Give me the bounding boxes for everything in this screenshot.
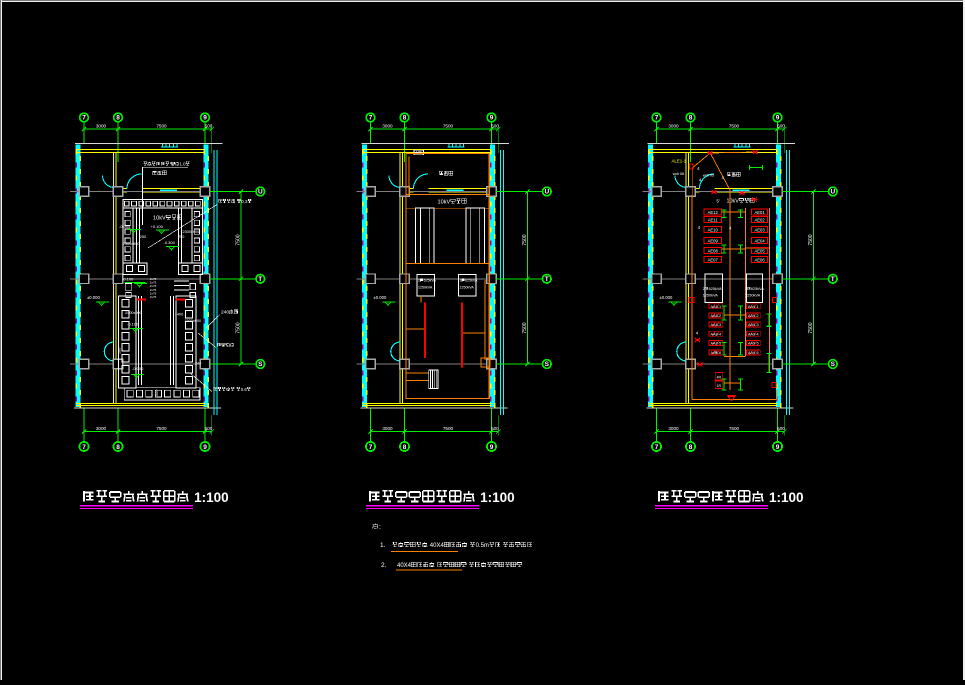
svg-text:7500: 7500	[522, 322, 528, 333]
svg-text:AE09: AE09	[708, 239, 719, 244]
svg-text:3000: 3000	[668, 124, 679, 129]
svg-text:AE04: AE04	[754, 239, 765, 244]
svg-text:3000: 3000	[382, 426, 393, 431]
svg-text:3000: 3000	[96, 426, 107, 431]
svg-text:500: 500	[777, 426, 785, 431]
svg-text:9: 9	[203, 115, 207, 122]
svg-text:10kV: 10kV	[438, 199, 451, 205]
svg-text:AE05: AE05	[754, 249, 765, 254]
svg-text:625kVA: 625kVA	[424, 279, 437, 283]
svg-text:7500: 7500	[236, 234, 242, 245]
svg-text:240: 240	[221, 310, 229, 316]
svg-text:AA8-2: AA8-2	[711, 314, 722, 318]
svg-text:7: 7	[82, 115, 86, 122]
svg-text:AA8-5: AA8-5	[711, 342, 722, 346]
svg-text::: :	[379, 524, 381, 531]
svg-text:1250kVA: 1250kVA	[745, 294, 761, 298]
svg-text:AE08: AE08	[708, 249, 719, 254]
svg-text:1:100: 1:100	[194, 490, 229, 505]
svg-text:500: 500	[777, 124, 785, 129]
svg-text:AA9-4: AA9-4	[748, 333, 759, 337]
svg-text:2: 2	[418, 279, 420, 283]
svg-text:2300x900: 2300x900	[183, 230, 200, 234]
svg-text:2.: 2.	[381, 562, 387, 569]
svg-text:T: T	[545, 276, 549, 283]
svg-text:9: 9	[203, 444, 207, 451]
svg-text:9: 9	[490, 115, 494, 122]
svg-text:0.6: 0.6	[241, 387, 248, 392]
svg-text:0.5m: 0.5m	[476, 543, 489, 549]
svg-text:8: 8	[403, 444, 407, 451]
svg-text:AA8-6: AA8-6	[711, 351, 722, 355]
svg-text:2500x900: 2500x900	[123, 242, 140, 246]
svg-text:AE11: AE11	[708, 217, 719, 222]
svg-text:500: 500	[205, 124, 213, 129]
svg-text:625kVA: 625kVA	[465, 279, 478, 283]
svg-text:7: 7	[655, 444, 659, 451]
svg-text:AA9-5: AA9-5	[748, 342, 759, 346]
svg-text:+0.100: +0.100	[151, 224, 164, 229]
svg-text:3000: 3000	[382, 124, 393, 129]
svg-text:7500: 7500	[729, 426, 740, 431]
svg-text:7500: 7500	[808, 322, 814, 333]
svg-text:-0.100: -0.100	[127, 322, 139, 327]
svg-text:1.: 1.	[380, 542, 386, 549]
svg-text:AE02: AE02	[754, 217, 765, 222]
svg-text:4R: 4R	[717, 375, 722, 379]
svg-text:1:100: 1:100	[480, 490, 515, 505]
svg-text:U: U	[830, 189, 835, 196]
svg-text:AA9-6: AA9-6	[748, 351, 759, 355]
svg-text:200: 200	[118, 348, 122, 354]
svg-text:500: 500	[491, 124, 499, 129]
svg-text:±0.000: ±0.000	[660, 295, 673, 300]
svg-text:7500: 7500	[156, 124, 167, 129]
svg-text:AA8-1: AA8-1	[711, 305, 722, 309]
svg-text:1.0: 1.0	[180, 162, 187, 167]
svg-text:1R: 1R	[717, 384, 722, 388]
svg-text:1250kVA: 1250kVA	[703, 294, 719, 298]
svg-text:7500: 7500	[808, 234, 814, 245]
svg-text:8: 8	[403, 115, 407, 122]
svg-text:U: U	[258, 189, 263, 196]
svg-text:9: 9	[490, 444, 494, 451]
svg-text:-0.100: -0.100	[122, 276, 134, 281]
svg-text:5': 5'	[717, 199, 720, 204]
svg-text:S: S	[831, 361, 836, 368]
svg-text:AE01: AE01	[754, 210, 765, 215]
svg-text:240: 240	[195, 362, 201, 366]
svg-text:7500: 7500	[156, 426, 167, 431]
svg-text:-0.050: -0.050	[132, 366, 144, 371]
svg-text:-0.300: -0.300	[164, 240, 176, 245]
svg-text:250: 250	[178, 235, 184, 239]
svg-text:AE12: AE12	[708, 210, 719, 215]
svg-text:1500x900: 1500x900	[184, 319, 201, 323]
svg-text:7: 7	[82, 444, 86, 451]
svg-text:8: 8	[689, 115, 693, 122]
svg-text:1:100: 1:100	[769, 490, 804, 505]
svg-text:7500: 7500	[443, 426, 454, 431]
svg-text:AA9-1: AA9-1	[748, 305, 759, 309]
svg-text:AE10: AE10	[708, 227, 719, 232]
svg-text:AA9-3: AA9-3	[748, 323, 759, 327]
svg-text:8: 8	[689, 444, 693, 451]
svg-text:7500: 7500	[522, 234, 528, 245]
svg-text:9: 9	[776, 444, 780, 451]
svg-text:T: T	[258, 276, 262, 283]
svg-text:625kVA: 625kVA	[751, 287, 764, 291]
svg-text:AE03: AE03	[754, 227, 765, 232]
svg-text:2500x900: 2500x900	[125, 311, 142, 315]
svg-text:1: 1	[460, 279, 462, 283]
svg-text:40X4: 40X4	[397, 563, 412, 569]
svg-text:S: S	[258, 361, 263, 368]
svg-text:7500: 7500	[729, 124, 740, 129]
svg-text:-0.004: -0.004	[119, 224, 131, 229]
svg-text:7: 7	[655, 115, 659, 122]
svg-text:2x75: 2x75	[150, 295, 157, 299]
svg-text:AA8-4: AA8-4	[711, 333, 722, 337]
svg-text:7: 7	[369, 444, 373, 451]
svg-text:ALE1-1: ALE1-1	[672, 159, 687, 164]
svg-text:500: 500	[205, 426, 213, 431]
svg-text:2: 2	[703, 287, 705, 291]
svg-text:7500: 7500	[236, 322, 242, 333]
svg-text:8: 8	[116, 115, 120, 122]
svg-text:8: 8	[116, 444, 120, 451]
svg-text:250: 250	[140, 235, 146, 239]
svg-text:625kVA: 625kVA	[709, 287, 722, 291]
svg-text:10kV: 10kV	[727, 199, 740, 205]
svg-text:1250kVA: 1250kVA	[418, 286, 433, 290]
svg-text:500: 500	[155, 390, 159, 396]
svg-text:1400: 1400	[175, 313, 183, 317]
svg-text:±0.000: ±0.000	[374, 295, 387, 300]
svg-text:40X4: 40X4	[430, 543, 445, 549]
svg-text:AA8-3: AA8-3	[711, 323, 722, 327]
svg-text:7: 7	[369, 115, 373, 122]
svg-text:1: 1	[745, 287, 747, 291]
svg-text:±0.000: ±0.000	[87, 295, 100, 300]
svg-text:9: 9	[776, 115, 780, 122]
svg-text:T: T	[831, 276, 835, 283]
svg-text:AA9-2: AA9-2	[748, 314, 759, 318]
svg-text:0.3: 0.3	[241, 199, 248, 204]
svg-text:1250kVA: 1250kVA	[460, 286, 475, 290]
svg-text:500: 500	[491, 426, 499, 431]
svg-text:7500: 7500	[443, 124, 454, 129]
svg-text:wdl 06: wdl 06	[673, 171, 685, 176]
svg-text:AE06: AE06	[754, 257, 765, 262]
svg-text:3000: 3000	[96, 124, 107, 129]
svg-text:S: S	[545, 361, 550, 368]
svg-text:U: U	[544, 189, 549, 196]
svg-text:3000: 3000	[668, 426, 679, 431]
svg-text:AE07: AE07	[708, 257, 719, 262]
svg-text:10kV: 10kV	[153, 216, 166, 222]
svg-text:wdl 05: wdl 05	[703, 172, 715, 177]
